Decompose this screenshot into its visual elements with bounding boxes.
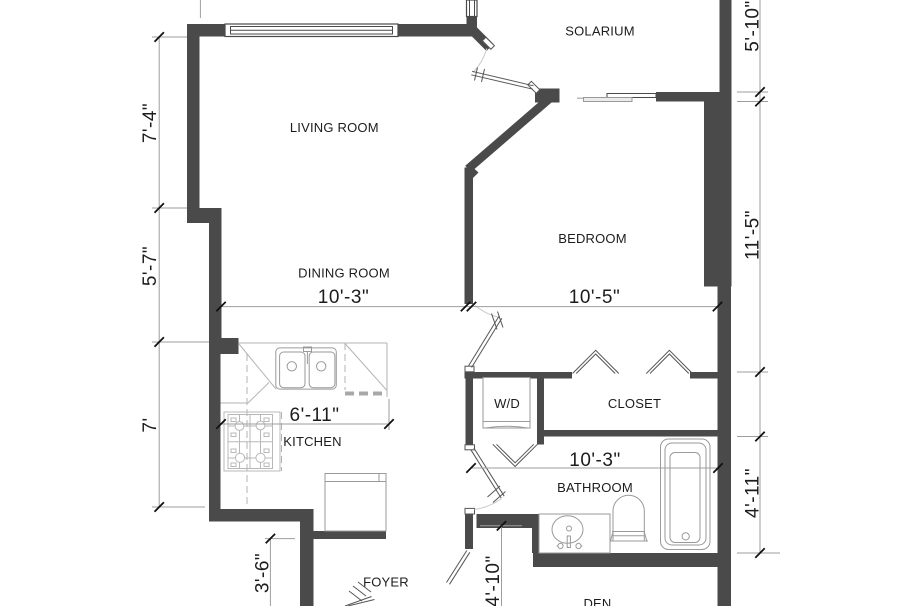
svg-text:LIVING ROOM: LIVING ROOM [290,120,379,135]
svg-text:SOLARIUM: SOLARIUM [565,24,635,39]
svg-text:DEN: DEN [583,596,611,606]
svg-text:5'-7": 5'-7" [140,246,161,286]
svg-text:4'-10": 4'-10" [483,555,504,606]
svg-text:DINING ROOM: DINING ROOM [298,266,390,281]
svg-text:11'-5": 11'-5" [743,210,764,260]
svg-text:CLOSET: CLOSET [608,396,661,411]
svg-text:BATHROOM: BATHROOM [557,480,633,495]
svg-text:5'-10": 5'-10" [743,0,764,51]
svg-text:7'-4": 7'-4" [140,103,161,143]
svg-text:10'-5": 10'-5" [569,287,620,308]
svg-text:4'-11": 4'-11" [743,468,764,518]
svg-text:BEDROOM: BEDROOM [558,231,627,246]
svg-text:KITCHEN: KITCHEN [283,434,341,449]
svg-text:10'-3": 10'-3" [569,450,620,471]
svg-text:FOYER: FOYER [363,575,409,590]
svg-text:3'-6": 3'-6" [253,553,274,593]
svg-text:7': 7' [140,417,161,432]
svg-text:10'-3": 10'-3" [318,287,369,308]
svg-text:6'-11": 6'-11" [290,405,340,426]
svg-text:W/D: W/D [494,396,520,411]
